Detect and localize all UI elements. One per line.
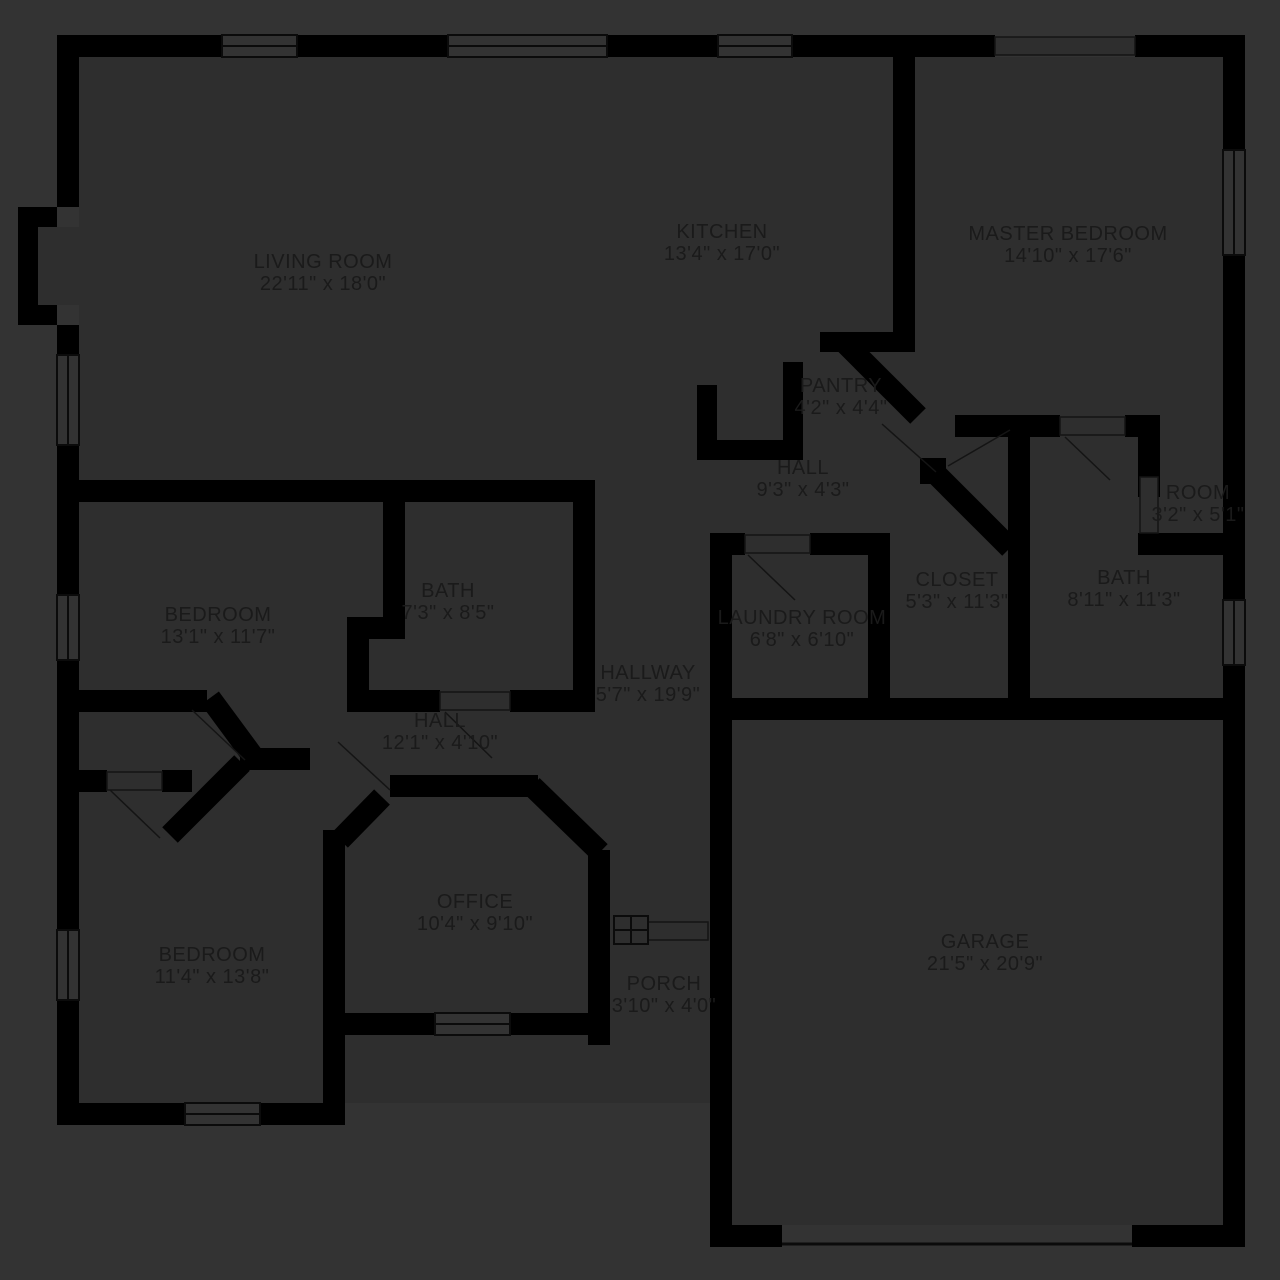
window-right-master (1223, 150, 1245, 255)
room-label-bath-middle: BATH (421, 580, 475, 602)
window-bottom-office (435, 1013, 510, 1035)
room-dims-living-room: 22'11" x 18'0" (260, 273, 386, 295)
room-label-kitchen: KITCHEN (676, 221, 767, 243)
room-dims-garage: 21'5" x 20'9" (927, 953, 1043, 975)
room-label-closet: CLOSET (915, 569, 998, 591)
room-dims-bedroom-middle: 13'1" x 11'7" (161, 626, 276, 648)
room-dims-bedroom-lower: 11'4" x 13'8" (155, 966, 270, 988)
window-bottom-bedroom (185, 1103, 260, 1125)
window-right-bath (1223, 600, 1245, 665)
room-label-hallway: HALLWAY (600, 662, 695, 684)
room-label-office: OFFICE (437, 891, 513, 913)
room-label-hall-lower: HALL (414, 710, 466, 732)
room-label-garage: GARAGE (941, 931, 1030, 953)
room-label-master-bedroom: MASTER BEDROOM (968, 223, 1167, 245)
room-dims-hall-upper: 9'3" x 4'3" (757, 479, 850, 501)
window-left-living (57, 355, 79, 445)
room-label-bath-master: BATH (1097, 567, 1151, 589)
window-top-kitchen-right (718, 35, 792, 57)
window-left-bedroom-middle (57, 595, 79, 660)
room-label-porch: PORCH (627, 973, 702, 995)
front-door-icon (614, 916, 648, 944)
room-label-room: ROOM (1166, 482, 1230, 504)
room-dims-hall-lower: 12'1" x 4'10" (382, 732, 498, 754)
room-dims-porch: 3'10" x 4'0" (612, 995, 717, 1017)
room-dims-kitchen: 13'4" x 17'0" (664, 243, 780, 265)
room-dims-pantry: 4'2" x 4'4" (795, 397, 888, 419)
room-label-bedroom-lower: BEDROOM (159, 944, 266, 966)
room-label-bedroom-middle: BEDROOM (165, 604, 272, 626)
room-dims-hallway: 5'7" x 19'9" (596, 684, 701, 706)
room-dims-room: 3'2" x 5'1" (1152, 504, 1245, 526)
room-dims-bath-master: 8'11" x 11'3" (1067, 589, 1180, 611)
window-top-kitchen-wide (448, 35, 607, 57)
room-label-laundry-room: LAUNDRY ROOM (718, 607, 887, 629)
room-label-living-room: LIVING ROOM (254, 251, 393, 273)
window-left-bedroom-lower (57, 930, 79, 1000)
room-label-hall-upper: HALL (777, 457, 829, 479)
floor-plan-page: LIVING ROOM22'11" x 18'0"KITCHEN13'4" x … (0, 0, 1280, 1280)
room-dims-master-bedroom: 14'10" x 17'6" (1004, 245, 1132, 267)
room-label-pantry: PANTRY (800, 375, 882, 397)
floor-plan: LIVING ROOM22'11" x 18'0"KITCHEN13'4" x … (0, 0, 1280, 1280)
room-dims-bath-middle: 7'3" x 8'5" (402, 602, 495, 624)
room-dims-closet: 5'3" x 11'3" (905, 591, 1008, 613)
room-dims-laundry-room: 6'8" x 6'10" (750, 629, 855, 651)
window-top-living (222, 35, 297, 57)
room-dims-office: 10'4" x 9'10" (417, 913, 533, 935)
